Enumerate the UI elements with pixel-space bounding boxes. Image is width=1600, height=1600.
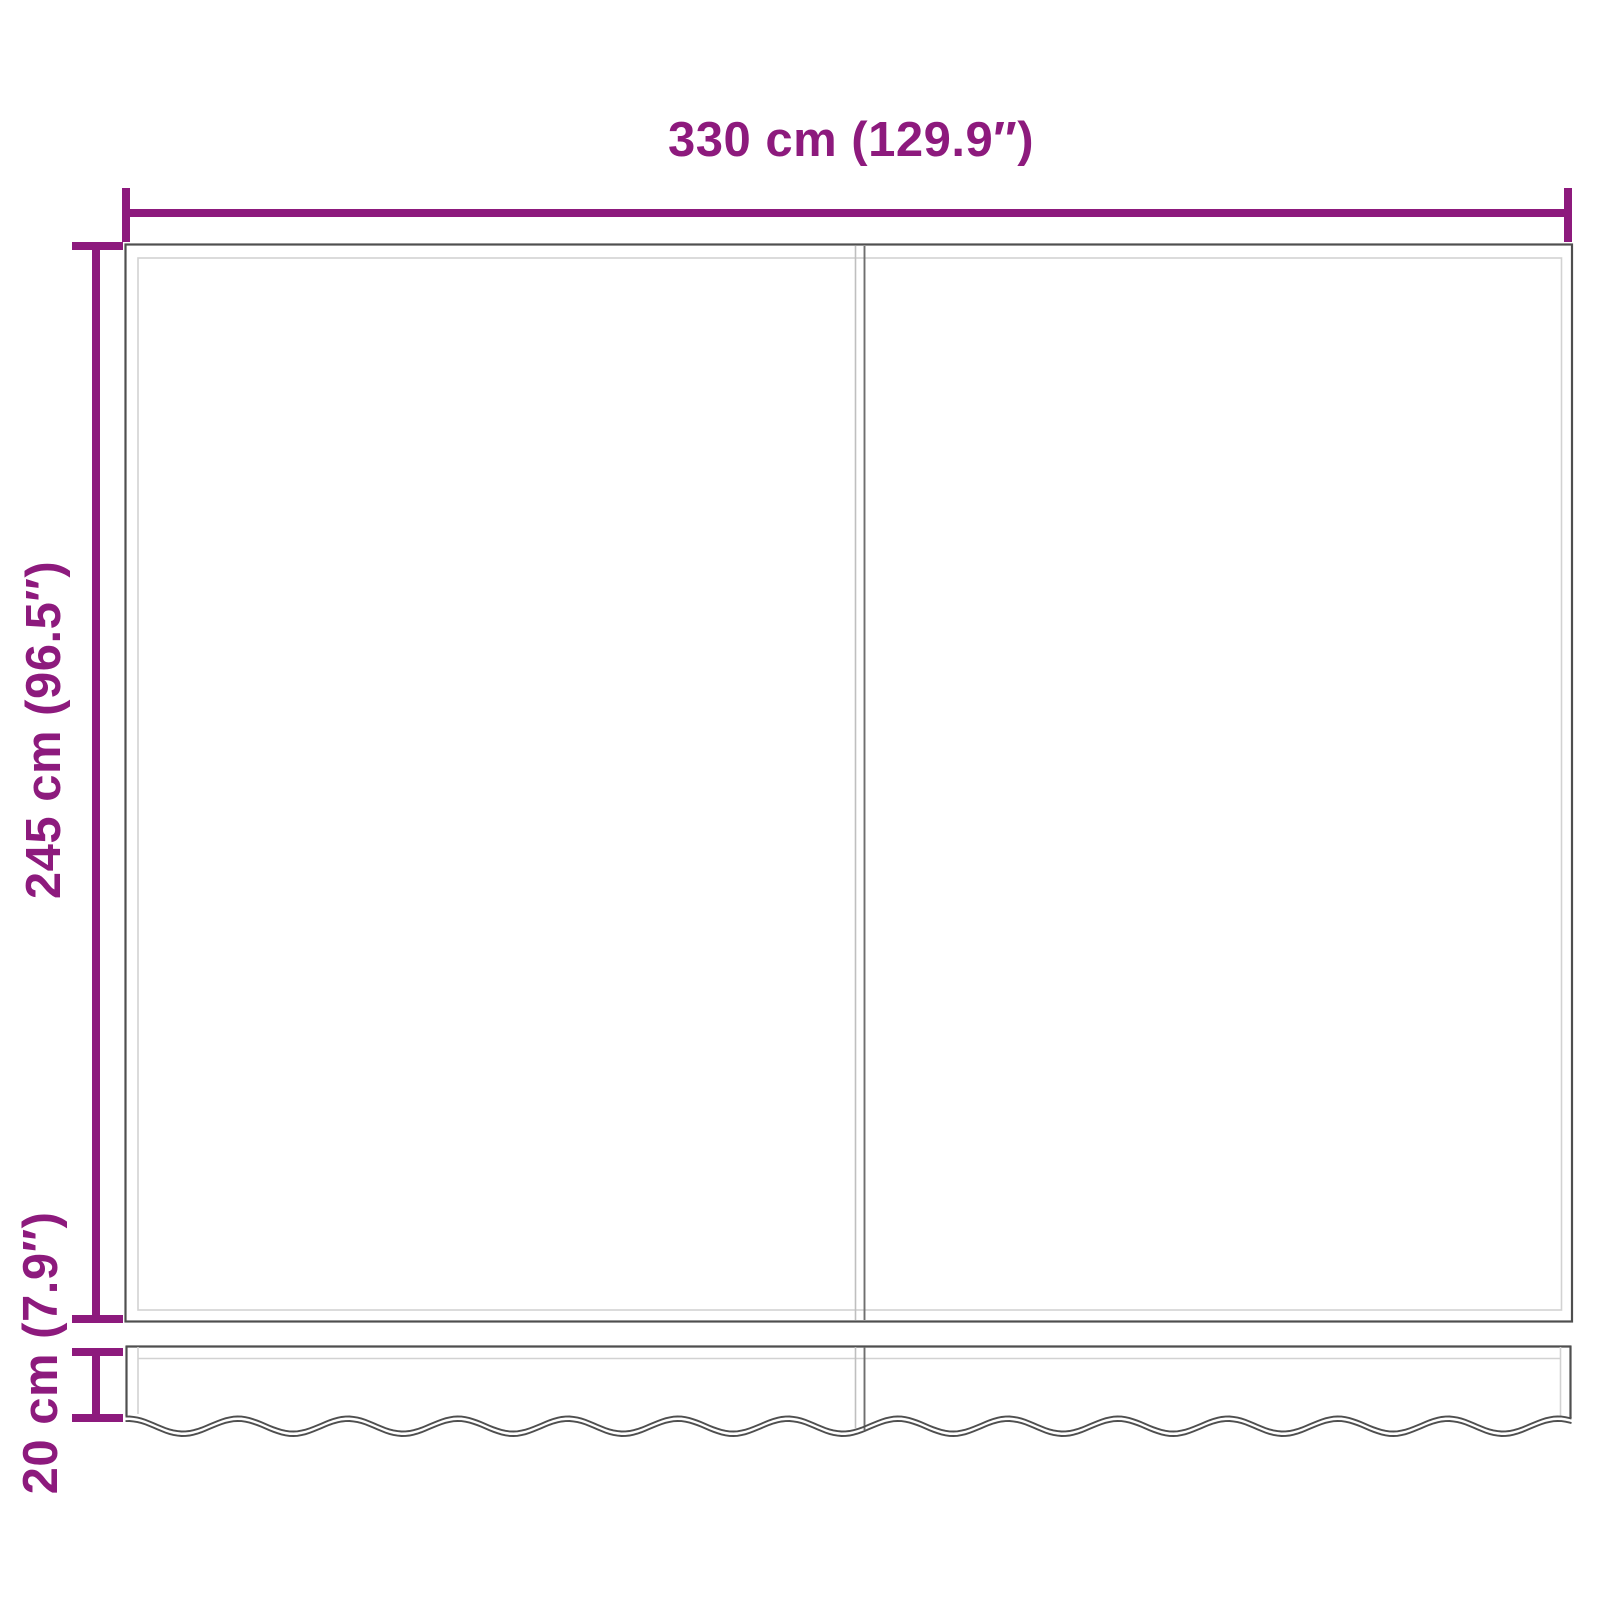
fabric-outline [126,245,1573,1322]
height-dimension-tick-top [72,242,123,250]
awning-fabric-panel [126,245,1573,1322]
valance-dimension: 20 cm (7.9″) [14,1212,123,1495]
valance-scallop-inner [126,1421,1572,1436]
valance-panel [126,1346,1572,1436]
product-dimension-diagram: 330 cm (129.9″) 245 cm (96.5″) 20 cm (7.… [0,0,1600,1600]
valance-dimension-tick-top [72,1348,123,1356]
height-dimension-label: 245 cm (96.5″) [17,561,71,899]
width-dimension-tick-right [1564,188,1572,242]
valance-dimension-label: 20 cm (7.9″) [14,1212,68,1495]
height-dimension: 245 cm (96.5″) [17,242,123,1323]
width-dimension-line [126,209,1570,217]
width-dimension-tick-left [122,188,130,242]
valance-dimension-line [92,1352,100,1418]
diagram-canvas: 330 cm (129.9″) 245 cm (96.5″) 20 cm (7.… [0,0,1600,1600]
width-dimension-label: 330 cm (129.9″) [668,113,1034,167]
valance-dimension-tick-bottom [72,1414,123,1422]
height-dimension-tick-bottom [72,1315,123,1323]
height-dimension-line [92,246,100,1319]
width-dimension: 330 cm (129.9″) [122,113,1572,242]
fabric-inner-hem-line [138,258,1562,1310]
